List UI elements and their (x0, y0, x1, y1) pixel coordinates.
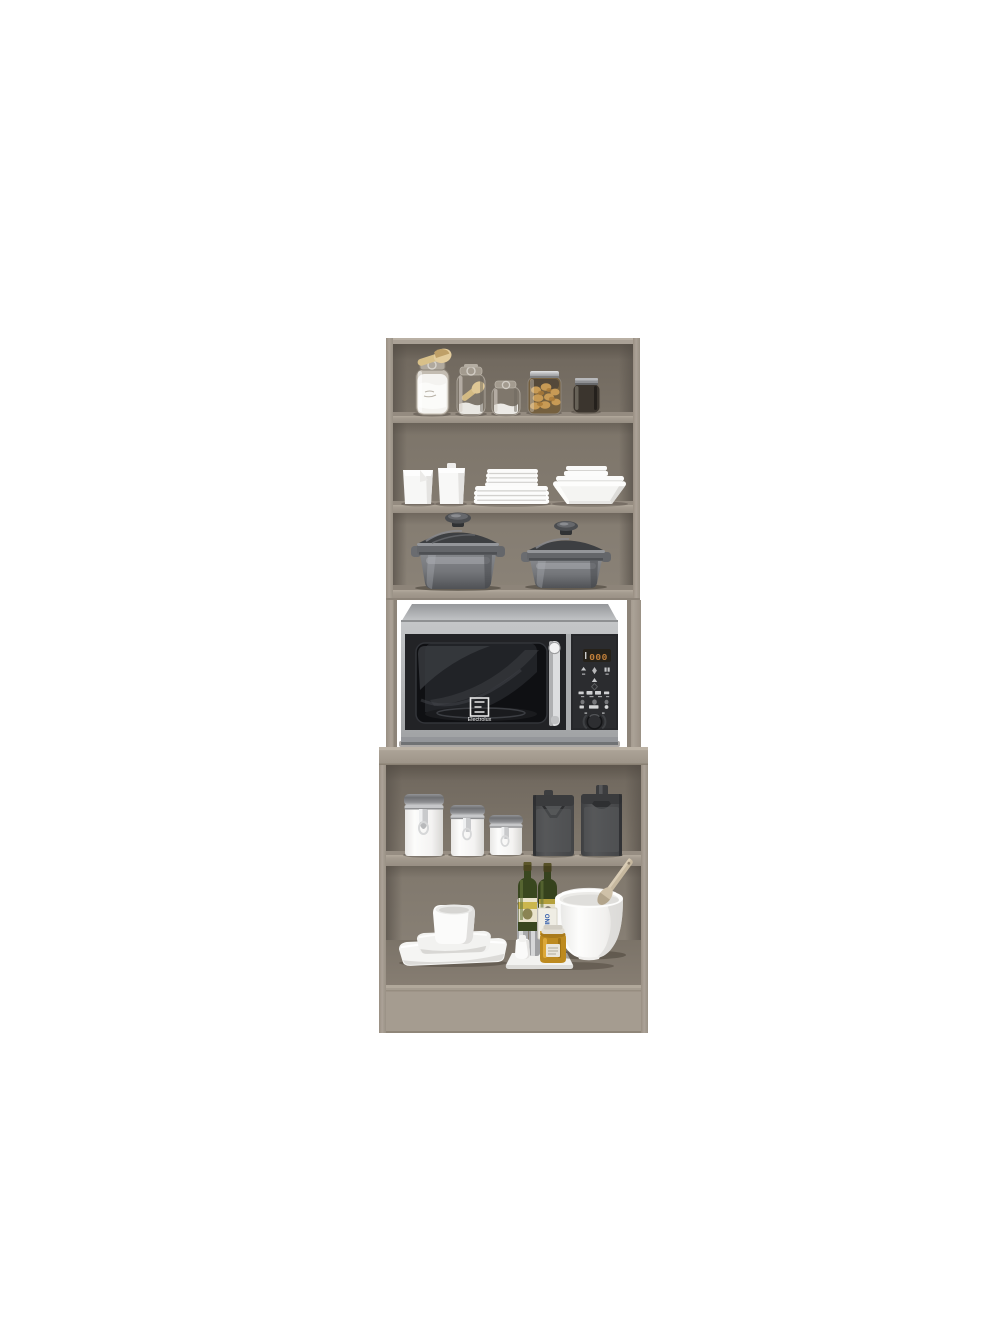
svg-text:Electrolux: Electrolux (468, 717, 492, 723)
svg-text:000: 000 (589, 652, 608, 663)
